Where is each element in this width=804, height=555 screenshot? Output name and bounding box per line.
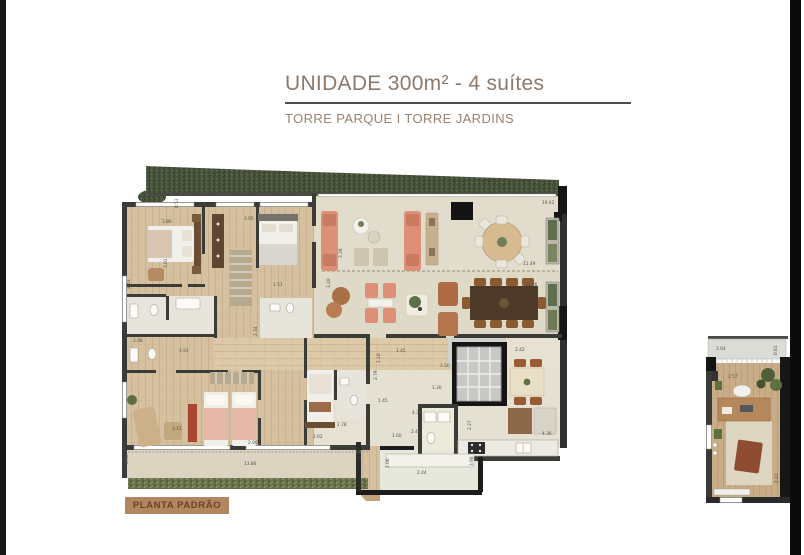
left-border-bar — [0, 0, 6, 555]
sofa — [404, 211, 421, 271]
leather-armchair — [438, 312, 458, 336]
dimension-label: 2.43 — [126, 279, 132, 289]
dimension-label: 2.34 — [253, 326, 259, 336]
pouf — [326, 302, 342, 318]
dimension-label: 11.49 — [523, 261, 536, 267]
pantry-cabinet — [508, 408, 532, 434]
dimension-label: 2.49 — [411, 429, 421, 435]
dimension-label: 1.10 — [376, 353, 382, 363]
laundry-counter — [386, 454, 474, 467]
dimension-label: 3.95 — [244, 216, 254, 222]
dimension-label: 2.64 — [716, 346, 726, 352]
dimension-label: 1.50 — [440, 363, 450, 369]
page-title: UNIDADE 300m² - 4 suítes — [285, 72, 631, 96]
dimension-label: 2.44 — [417, 470, 427, 476]
header: UNIDADE 300m² - 4 suítes TORRE PARQUE I … — [285, 72, 631, 126]
leather-armchair — [438, 282, 458, 306]
dimension-label: 3.86 — [162, 219, 172, 225]
main-floorplan: 19.428.513.863.953.012.433.3911.4911.661… — [118, 156, 570, 508]
bed — [305, 370, 335, 428]
dimension-label: 2.27 — [467, 420, 473, 430]
dimension-label: 13.86 — [244, 461, 257, 467]
dimension-label: 2.78 — [337, 422, 347, 428]
dimension-label: 3.98 — [469, 456, 475, 466]
dimension-label: 0.61 — [773, 345, 779, 355]
page-subtitle: TORRE PARQUE I TORRE JARDINS — [285, 111, 631, 126]
dimension-label: 1.45 — [396, 348, 406, 354]
cabinet — [534, 408, 556, 434]
wardrobe-shelving — [210, 372, 254, 384]
lounge-ottoman — [734, 439, 763, 473]
plant-side-table — [406, 294, 428, 316]
dimension-label: 19.42 — [542, 200, 555, 206]
dimension-label: 4.36 — [542, 431, 552, 437]
elevator — [457, 347, 501, 401]
fireplace — [451, 202, 473, 220]
kitchen-counter — [458, 440, 558, 456]
tv-console — [426, 213, 438, 265]
dimension-label: 1.45 — [378, 398, 388, 404]
dimension-label: 3.39 — [338, 248, 344, 258]
dimension-label: 3.01 — [163, 258, 169, 268]
annex-floorplan: 2.640.612.574.42 — [700, 333, 795, 508]
dimension-label: 2.42 — [515, 347, 525, 353]
dimension-label: 4.39 — [412, 410, 422, 416]
dimension-label: 1.93 — [179, 348, 189, 354]
dimension-label: 2.06 — [385, 458, 391, 468]
dimension-label: 2.57 — [728, 374, 738, 380]
plan-type-tag: PLANTA PADRÃO — [125, 497, 229, 514]
dimension-label: 2.62 — [313, 434, 323, 440]
page: UNIDADE 300m² - 4 suítes TORRE PARQUE I … — [0, 0, 804, 555]
dimension-label: 1.51 — [273, 282, 283, 288]
dimension-label: 0.98 — [124, 454, 130, 464]
dimension-label: 1.30 — [432, 385, 442, 391]
dimension-label: 2.90 — [248, 440, 258, 446]
dimension-label: 8.51 — [174, 198, 180, 208]
dimension-label: 2.08 — [133, 338, 143, 344]
dimension-label: 11.66 — [525, 282, 538, 288]
dimension-label: 2.79 — [373, 370, 379, 380]
dimension-label: 1.60 — [392, 433, 402, 439]
sofa — [321, 211, 338, 271]
dimension-label: 3.15 — [172, 426, 182, 432]
garden-hedge-bottom — [128, 478, 368, 489]
title-underline — [285, 102, 631, 104]
low-shelf — [714, 489, 750, 495]
dimension-label: 4.42 — [774, 473, 780, 483]
bed — [258, 214, 298, 265]
dimension-label: 3.28 — [326, 278, 332, 288]
dimension-label: 1.73 — [357, 449, 363, 459]
